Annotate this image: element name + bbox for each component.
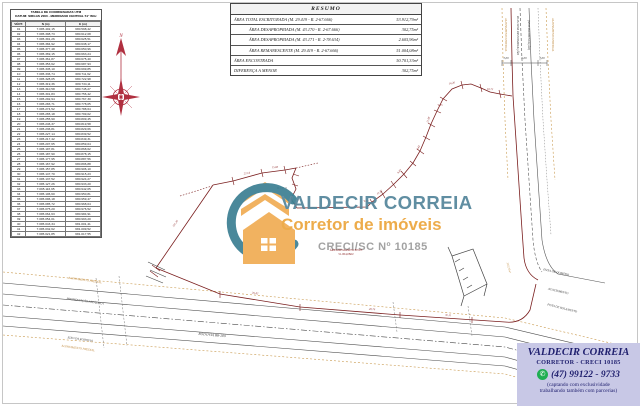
plan-label: PISTA DE ROLAMENTO — [546, 302, 579, 314]
corner-detail-lines — [146, 262, 166, 283]
remaining-area-note: ÁREA REMANESCENTE 51.004,08m² — [320, 249, 372, 256]
broker-contact-card: VALDECIR CORREIA CORRETOR - CRECI 10185 … — [517, 343, 640, 406]
plan-label: 22,14 — [244, 171, 251, 175]
plan-label: ALINHAMENTO PREDIAL — [67, 276, 102, 285]
coord-table-row: 427.095.021,85681.017,55 — [12, 231, 101, 236]
footer-note: (captando com exclusividade trabalhando … — [517, 382, 640, 395]
coord-title-line2: DATUM: SIRGAS 2000 - MERIDIANO CENTRAL 5… — [11, 15, 101, 19]
plan-label: 30,11 — [445, 314, 452, 317]
plan-label: 28,76 — [369, 308, 376, 311]
plan-label: 18,75 — [487, 88, 494, 91]
plan-label: 302,75m² — [506, 262, 512, 273]
resumo-row: ÁREA DESAPROPRIADA (M. 43.171 - R. 2-78.… — [231, 34, 421, 44]
footer-phone-number: (47) 99122 - 9733 — [551, 370, 620, 380]
plan-label: 11,08 — [426, 116, 431, 123]
plan-label: V-15 — [438, 104, 444, 107]
footer-phone-row: ✆ (47) 99122 - 9733 — [517, 369, 640, 380]
plan-label: N — [118, 34, 123, 39]
watermark-tagline: Corretor de imóveis — [281, 215, 442, 235]
plan-label: 35,42 — [252, 292, 259, 296]
whatsapp-phone-icon: ✆ — [537, 369, 548, 380]
watermark-broker-name: VALDECIR CORREIA — [281, 192, 473, 214]
footer-creci-subtitle: CORRETOR - CRECI 10185 — [517, 359, 640, 366]
area-note-value: 51.004,08m² — [320, 253, 372, 257]
plan-label: FAIXA DE DOMÍNIO — [542, 266, 571, 277]
street-dotted-line — [538, 8, 551, 235]
footer-note-line2: trabalhando também com parcerias) — [517, 388, 640, 394]
resumo-row: ÁREA REMANESCENTE (M. 29.419 - R. 2-67.6… — [231, 45, 421, 55]
plan-label: ALINHAMENTO PREDIAL — [551, 17, 555, 52]
plan-label: 9,87 — [397, 168, 403, 174]
survey-plan-sheet: { "colors": { "boundary_red": "#7a1e1e",… — [0, 0, 640, 406]
resumo-table: RESUMO ÁREA TOTAL ESCRITURADA (M. 29.419… — [230, 3, 422, 76]
plan-label: ALINHAMENTO PREDIAL — [60, 344, 95, 353]
resumo-row: ÁREA ENCONTRADA50.701,33m² — [231, 55, 421, 65]
plan-label: EIXO DA RODOVIA — [66, 335, 93, 343]
plan-label: RODOVIA BR-280 — [197, 332, 226, 338]
street-right-edge — [529, 8, 605, 283]
highway-section-ticks — [96, 276, 472, 348]
resumo-title: RESUMO — [231, 4, 421, 15]
resumo-row: DIFERENÇA A MENOR302,75m² — [231, 65, 421, 75]
plan-label: 101,35 — [172, 219, 179, 228]
plan-label: ACOSTAMENTO — [547, 287, 570, 296]
plan-label: RUA SEM DENOMINAÇÃO — [516, 15, 521, 56]
north-compass-icon — [102, 38, 140, 116]
footer-broker-name: VALDECIR CORREIA — [517, 347, 640, 358]
coordinate-table: TABELA DE COORDENADAS UTM DATUM: SIRGAS … — [10, 9, 102, 238]
resumo-row: ÁREA TOTAL ESCRITURADA (M. 29.419 - R. 2… — [231, 15, 421, 24]
plan-label: 14,20 — [449, 81, 456, 85]
resumo-row: ÁREA DESAPROPRIADA (M. 43.170 - R. 2-67.… — [231, 24, 421, 34]
plan-label: 15,60 — [272, 166, 279, 169]
coordinate-table-title: TABELA DE COORDENADAS UTM DATUM: SIRGAS … — [11, 10, 101, 21]
plan-label: 3,00 — [503, 56, 509, 61]
plan-label: ALINHAMENTO PREDIAL — [504, 17, 508, 52]
plan-label: (SEM PAVIMENTAÇÃO) — [527, 20, 532, 50]
